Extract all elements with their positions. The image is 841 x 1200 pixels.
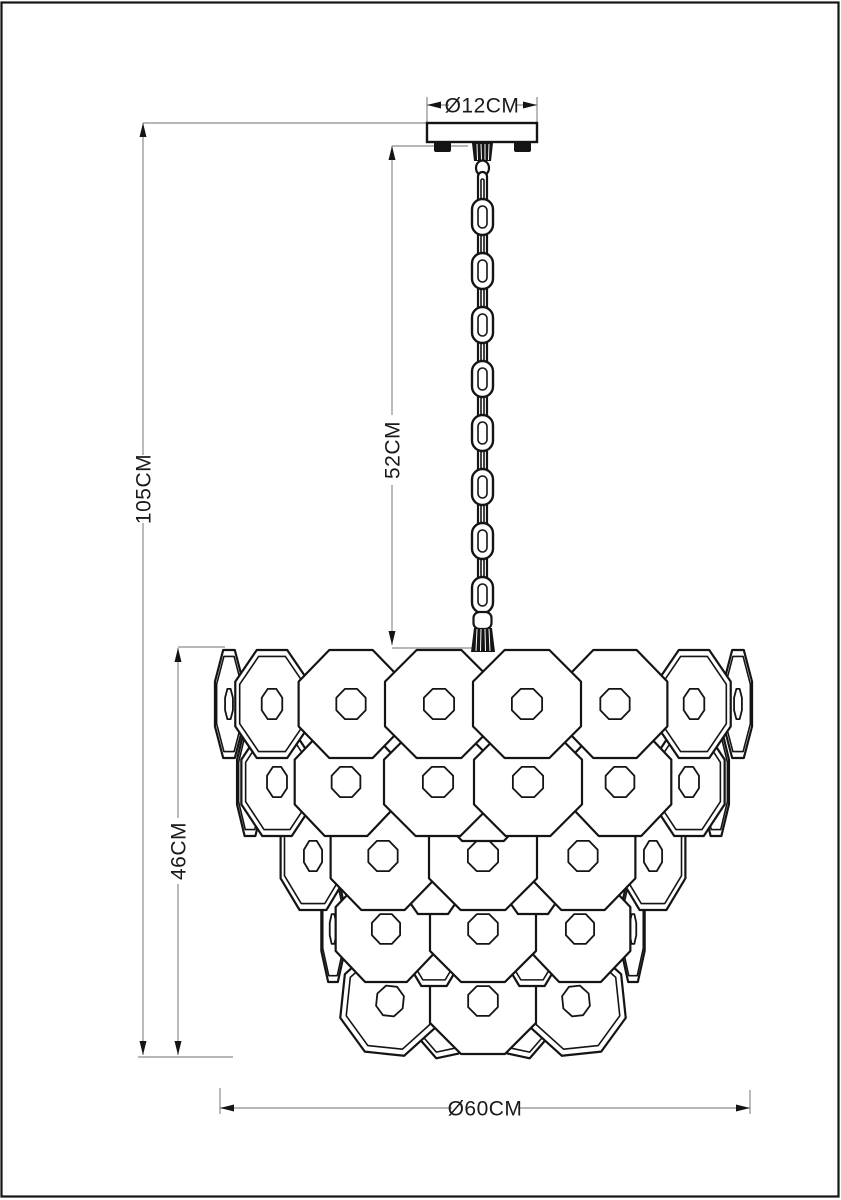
chain-link (472, 361, 493, 397)
body-diameter-label: Ø60CM (448, 1097, 523, 1120)
total-height-label: 105CM (132, 454, 155, 524)
chain-link (472, 415, 493, 451)
connector-cup (474, 612, 492, 629)
chain-body-connector (471, 612, 495, 652)
hanging-length-label: 52CM (381, 421, 404, 479)
chain-link (472, 469, 493, 505)
threaded-nipple (472, 143, 493, 161)
drawing-canvas: Ø12CM 105CM 52CM 46CM Ø60CM (0, 0, 841, 1200)
chain-link (472, 577, 493, 613)
body-height-label: 46CM (167, 822, 190, 880)
canopy-foot (514, 142, 531, 152)
chain-link (472, 199, 493, 235)
canopy-diameter-label: Ø12CM (445, 94, 520, 117)
chain-link (472, 307, 493, 343)
chain-link (472, 253, 493, 289)
chandelier-dimension-drawing: Ø12CM 105CM 52CM 46CM Ø60CM (0, 0, 841, 1200)
canopy-foot (434, 142, 451, 152)
chain-link (472, 523, 493, 559)
canopy-plate (427, 123, 537, 142)
octagon-disc (473, 650, 581, 758)
threaded-nipple (471, 628, 495, 652)
